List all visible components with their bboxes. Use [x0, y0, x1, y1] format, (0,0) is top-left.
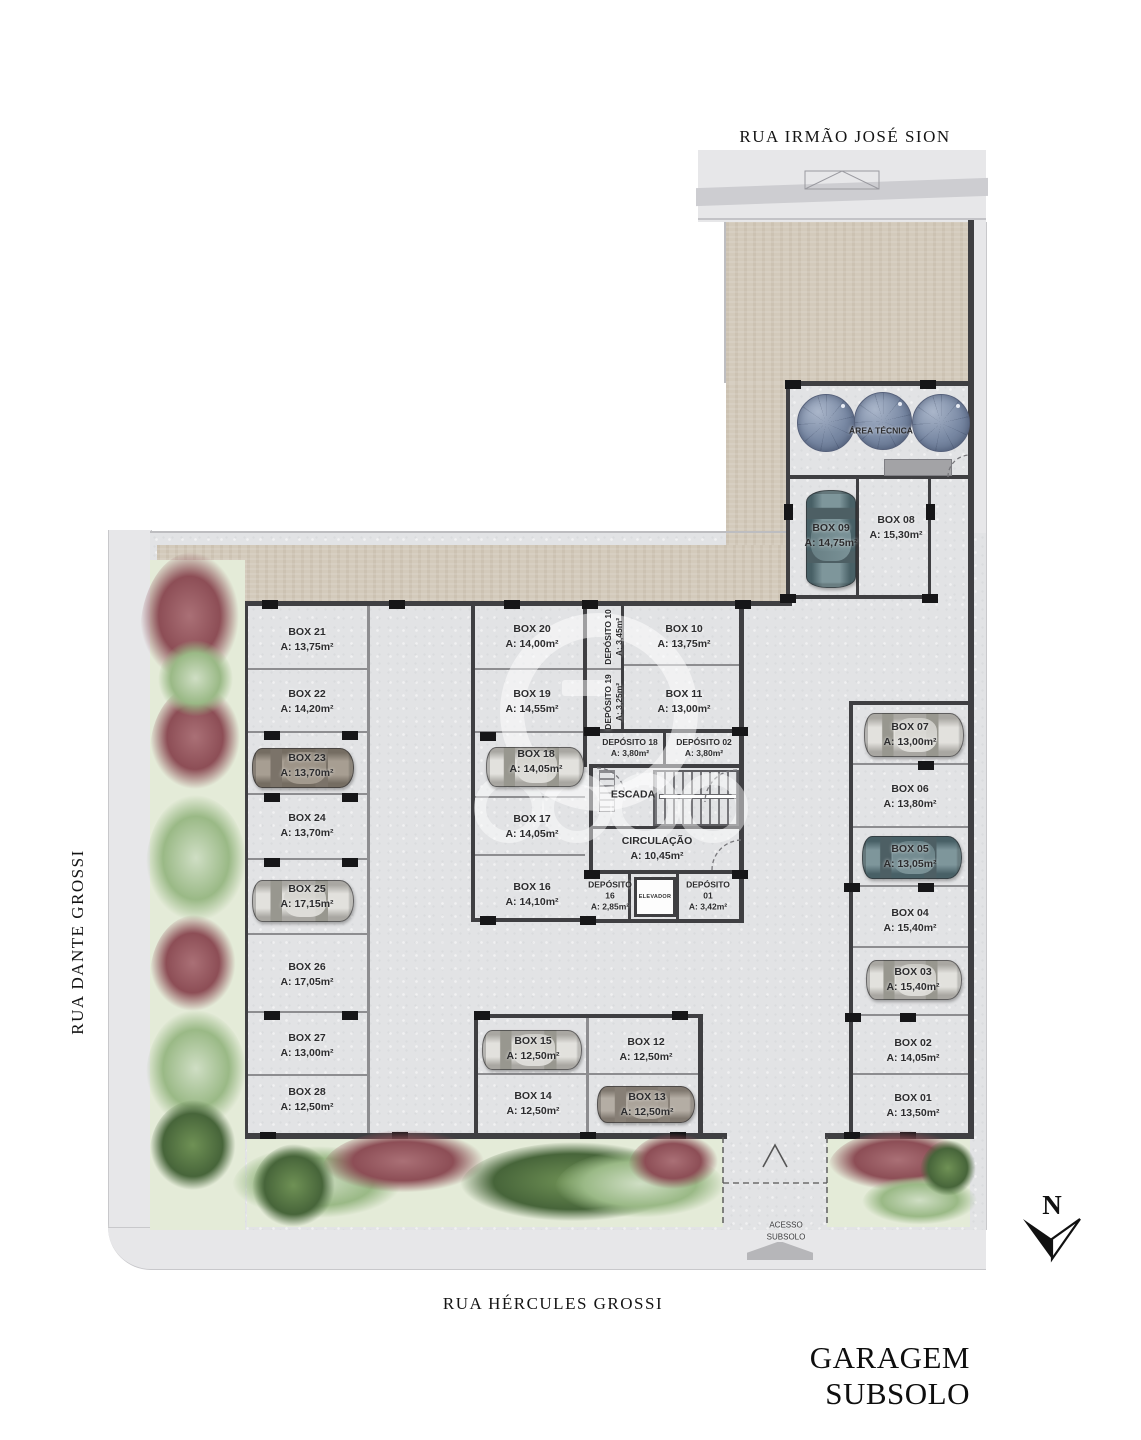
room-label-box26: BOX 26A: 17,05m²	[280, 960, 333, 990]
room-label-box20: BOX 20A: 14,00m²	[505, 622, 558, 652]
room-label-box15: BOX 15A: 12,50m²	[506, 1034, 559, 1064]
access-label: ACESSOSUBSOLO	[767, 1219, 806, 1242]
room-label-deposito10: DEPÓSITO 10A: 3,45m²	[603, 609, 625, 665]
room-label-box12: BOX 12A: 12,50m²	[619, 1035, 672, 1065]
room-label-box27: BOX 27A: 13,00m²	[280, 1031, 333, 1061]
street-name-bottom: RUA HÉRCULES GROSSI	[408, 1294, 698, 1314]
room-label-box18: BOX 18A: 14,05m²	[509, 747, 562, 777]
room-label-box04: BOX 04A: 15,40m²	[883, 906, 936, 936]
svg-text:N: N	[1042, 1190, 1062, 1220]
floor-plan: ELEVADOR BOX 21A: 13,75m² BOX 22A: 14,20…	[0, 0, 1141, 1440]
room-label-box02: BOX 02A: 14,05m²	[886, 1036, 939, 1066]
room-label-box22: BOX 22A: 14,20m²	[280, 687, 333, 717]
room-label-box21: BOX 21A: 13,75m²	[280, 625, 333, 655]
room-label-box14: BOX 14A: 12,50m²	[506, 1089, 559, 1119]
room-label-box28: BOX 28A: 12,50m²	[280, 1085, 333, 1115]
room-label-box19: BOX 19A: 14,55m²	[505, 687, 558, 717]
room-label-box11: BOX 11A: 13,00m²	[657, 687, 710, 717]
room-label-box13: BOX 13A: 12,50m²	[620, 1090, 673, 1120]
room-label-box06: BOX 06A: 13,80m²	[883, 782, 936, 812]
street-name-left: RUA DANTE GROSSI	[68, 792, 88, 1092]
room-label-box16: BOX 16A: 14,10m²	[505, 880, 558, 910]
room-label-deposito16: DEPÓSITO16A: 2,85m²	[588, 879, 632, 912]
room-label-box24: BOX 24A: 13,70m²	[280, 811, 333, 841]
room-label-escada: ESCADA	[611, 787, 655, 802]
room-label-deposito02: DEPÓSITO 02A: 3,80m²	[676, 737, 732, 759]
room-label-deposito01: DEPÓSITO01A: 3,42m²	[686, 879, 730, 912]
room-label-box05: BOX 05A: 13,05m²	[883, 842, 936, 872]
north-arrow-icon: N	[1014, 1190, 1090, 1270]
room-label-deposito18: DEPÓSITO 18A: 3,80m²	[602, 737, 658, 759]
room-label-circulacao: CIRCULAÇÃOA: 10,45m²	[622, 834, 693, 864]
room-label-box08: BOX 08A: 15,30m²	[869, 513, 922, 543]
room-label-area-tecnica: ÁREA TÉCNICA	[849, 425, 913, 436]
room-label-box23: BOX 23A: 13,70m²	[280, 751, 333, 781]
street-name-top: RUA IRMÃO JOSÉ SION	[700, 127, 990, 147]
room-label-box03: BOX 03A: 15,40m²	[886, 965, 939, 995]
room-label-box10: BOX 10A: 13,75m²	[657, 622, 710, 652]
room-label-box01: BOX 01A: 13,50m²	[886, 1091, 939, 1121]
room-label-box25: BOX 25A: 17,15m²	[280, 882, 333, 912]
plan-title: GARAGEM SUBSOLO	[660, 1340, 970, 1412]
access-ramp-markings	[713, 1137, 837, 1231]
room-label-box09: BOX 09A: 14,75m²	[804, 521, 857, 551]
room-label-box17: BOX 17A: 14,05m²	[505, 812, 558, 842]
room-label-deposito19: DEPÓSITO 19A: 3,25m²	[603, 674, 625, 730]
room-label-box07: BOX 07A: 13,00m²	[883, 720, 936, 750]
